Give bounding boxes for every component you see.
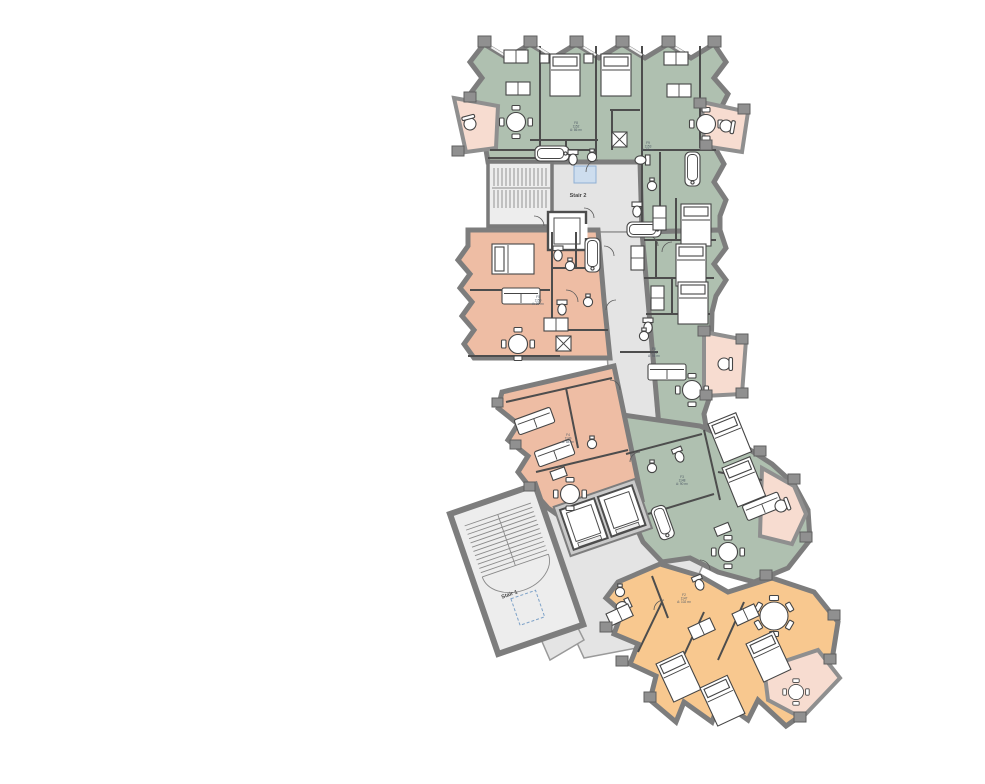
balcony-chair <box>718 358 733 371</box>
bed <box>550 54 580 96</box>
bed <box>492 244 534 274</box>
bed <box>681 204 711 246</box>
stair2-label: Stair 2 <box>570 193 587 199</box>
toilet <box>635 155 650 165</box>
bed <box>678 282 708 324</box>
wardrobe <box>631 246 644 270</box>
cabinet <box>664 52 688 65</box>
cabinet <box>504 50 528 63</box>
sofa <box>648 364 686 380</box>
shower <box>612 132 627 147</box>
bathtub <box>585 238 600 272</box>
toilet <box>557 300 567 315</box>
shower <box>556 336 571 351</box>
skylight-marker <box>574 166 596 183</box>
bed <box>676 244 706 286</box>
cabinet <box>544 318 568 331</box>
wardrobe <box>651 286 664 310</box>
bathtub <box>685 152 700 186</box>
elevator-upper <box>548 212 586 250</box>
bathtub <box>535 146 569 161</box>
floor-plan-canvas: Stair 1 <box>0 0 985 784</box>
cabinet <box>667 84 691 97</box>
nightstand <box>584 54 593 63</box>
bed <box>601 54 631 96</box>
toilet <box>553 246 563 261</box>
wardrobe <box>653 206 666 230</box>
floor-plan-page: Stair 1 <box>0 0 985 784</box>
toilet <box>632 202 642 217</box>
toilet <box>568 150 578 165</box>
nightstand <box>540 54 549 63</box>
cabinet <box>506 82 530 95</box>
